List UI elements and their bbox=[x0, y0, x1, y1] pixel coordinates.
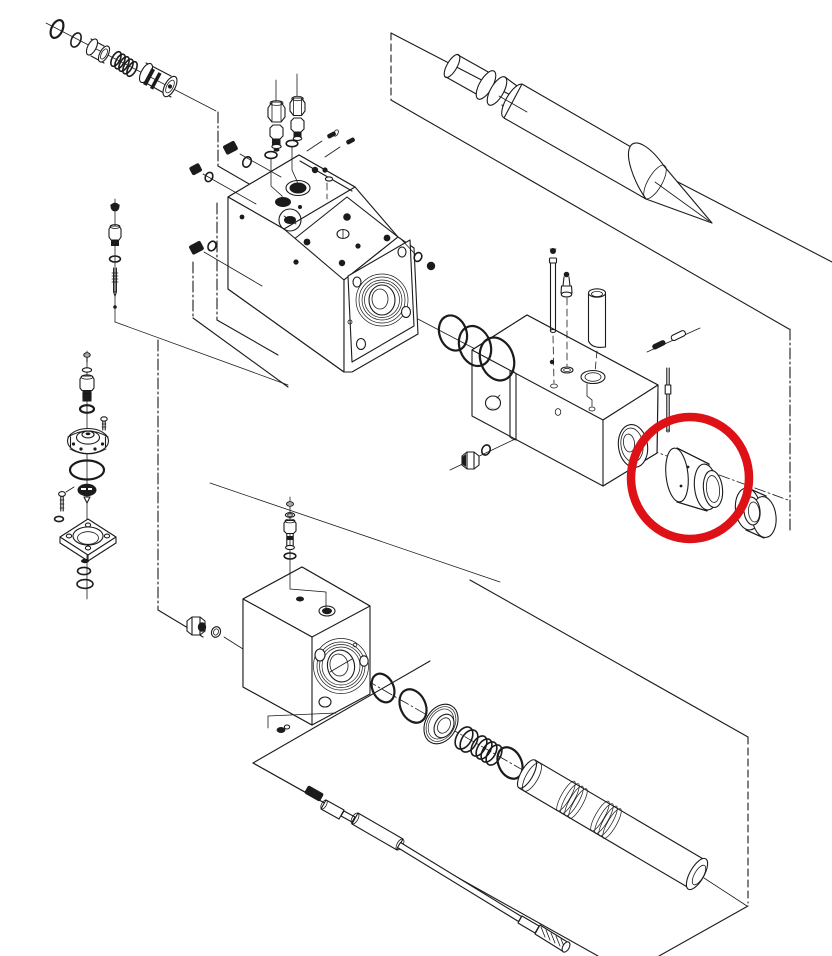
bore-face-hole-1 bbox=[315, 649, 325, 661]
bore-face-hole-3 bbox=[360, 656, 368, 666]
cylinder-bore bbox=[314, 639, 369, 694]
top-port bbox=[322, 608, 332, 614]
exploded-parts-diagram bbox=[0, 0, 832, 956]
hex-cap-plug-2 bbox=[290, 96, 305, 115]
diagram-page bbox=[0, 0, 832, 956]
bore-face-hole-2 bbox=[319, 697, 331, 707]
accumulator-washer bbox=[82, 368, 91, 372]
vent-washer bbox=[285, 513, 294, 518]
flange-nut bbox=[81, 559, 89, 563]
accumulator-cap bbox=[68, 429, 109, 455]
top-port-dot bbox=[296, 597, 304, 602]
hex-cap-plug-1 bbox=[268, 101, 285, 122]
